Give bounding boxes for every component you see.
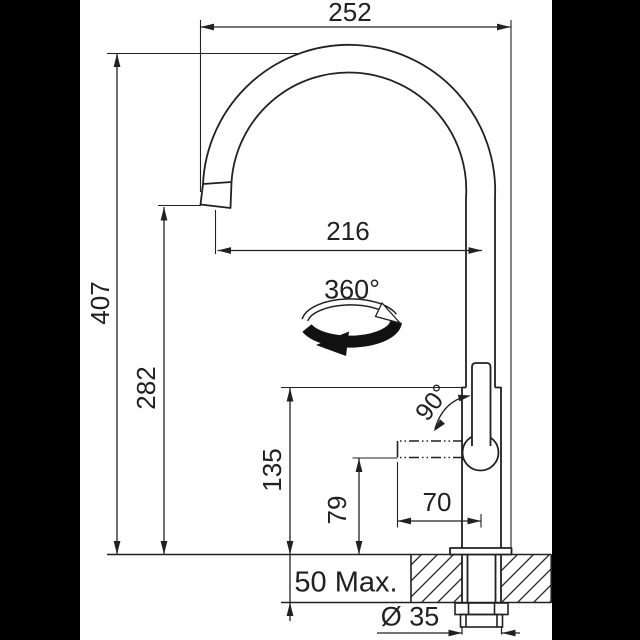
phantom-handle	[398, 441, 464, 458]
countertop-hatching	[411, 555, 462, 603]
dim-label-body-height: 135	[259, 448, 285, 491]
base-flange	[450, 548, 512, 555]
dim-label-handle-clearance: 79	[324, 496, 350, 525]
dim-label-spout-clearance: 282	[133, 366, 159, 409]
mounting-nut	[455, 603, 508, 635]
handle-lever	[472, 363, 491, 446]
dim-label-total-height: 407	[87, 281, 113, 324]
extension-lines	[107, 20, 511, 548]
dim-label-deck-thickness: 50 Max.	[294, 569, 397, 598]
mounting-shank	[462, 555, 501, 604]
dim-label-swivel-angle: 360°	[324, 277, 380, 304]
rotation-360-icon	[305, 302, 400, 356]
countertop-hatching	[501, 555, 552, 603]
spout-tip	[201, 182, 232, 208]
dim-label-spout-reach: 216	[326, 218, 369, 244]
dim-label-handle-reach: 70	[423, 489, 452, 515]
dim-label-hole-diameter: Ø 35	[381, 604, 440, 631]
faucet-outline	[201, 45, 512, 603]
screenshot-canvas: 252 407 216 282 360° 90° 135 79 70 50 Ma…	[0, 0, 640, 640]
dim-label-spout-width: 252	[328, 0, 371, 25]
